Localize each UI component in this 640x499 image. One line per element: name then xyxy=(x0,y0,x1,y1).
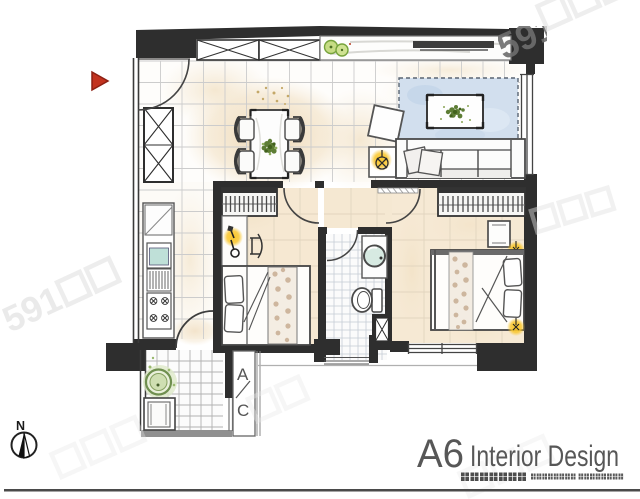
svg-text:A6: A6 xyxy=(417,432,464,476)
svg-text:N: N xyxy=(16,419,25,433)
svg-text:Interior Design: Interior Design xyxy=(470,440,619,473)
svg-text:C: C xyxy=(237,401,249,420)
svg-text:A: A xyxy=(237,365,249,384)
